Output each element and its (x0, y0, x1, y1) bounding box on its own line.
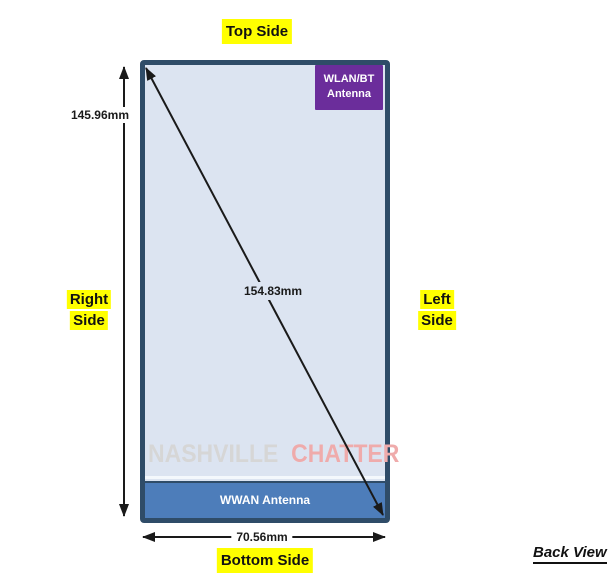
watermark-part2: CHATTER (291, 440, 399, 468)
wlan-bt-antenna-label-line1: WLAN/BT (315, 72, 383, 87)
bottom-side-label: Bottom Side (217, 548, 313, 573)
wlan-bt-antenna-label-line2: Antenna (315, 87, 383, 102)
left-side-label-line1: Left (420, 290, 454, 309)
right-side-label: Right Side (67, 289, 111, 331)
left-side-label: Left Side (418, 289, 456, 331)
back-view-caption: Back View (533, 544, 607, 564)
wwan-antenna-label: WWAN Antenna (220, 493, 310, 507)
watermark: NASHVILLE CHATTER (148, 440, 399, 469)
wwan-band-separator (145, 476, 385, 479)
right-side-label-line1: Right (67, 290, 111, 309)
right-side-label-line2: Side (70, 311, 108, 330)
height-dimension-label: 145.96mm (69, 107, 131, 123)
left-side-label-line2: Side (418, 311, 456, 330)
width-dimension-label: 70.56mm (231, 530, 292, 544)
wlan-bt-antenna-region: WLAN/BT Antenna (315, 65, 383, 110)
diagonal-dimension-label: 154.83mm (240, 282, 306, 300)
top-side-label: Top Side (222, 19, 292, 44)
watermark-part1: NASHVILLE (148, 440, 278, 468)
diagram-canvas: WLAN/BT Antenna WWAN Antenna NASHVILLE C… (0, 0, 610, 574)
wwan-antenna-region: WWAN Antenna (145, 481, 385, 518)
